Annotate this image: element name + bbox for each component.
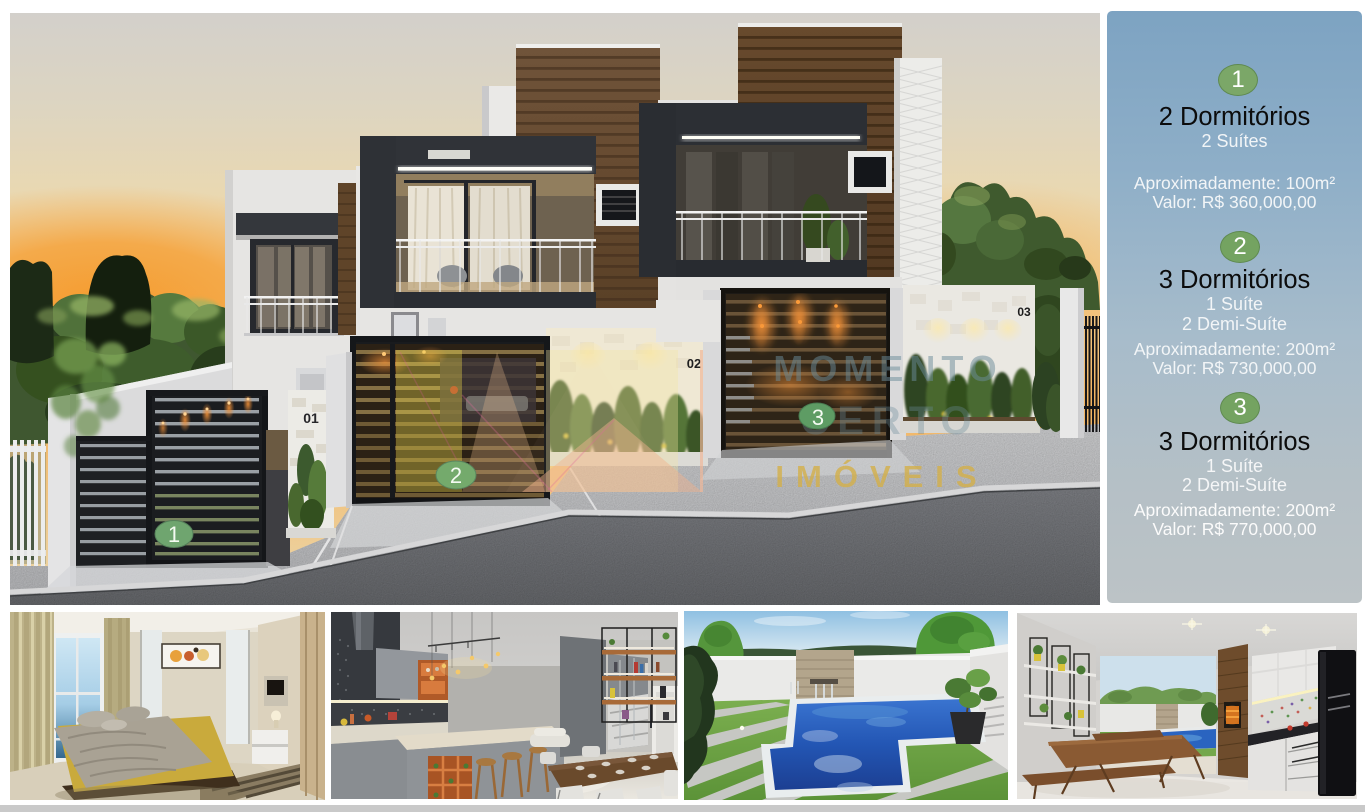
svg-text:1: 1	[168, 522, 180, 547]
svg-text:01: 01	[303, 410, 319, 426]
svg-text:IMÓVEIS: IMÓVEIS	[775, 458, 988, 494]
svg-text:02: 02	[687, 356, 701, 371]
svg-text:03: 03	[1017, 305, 1031, 319]
svg-text:MOMENTO: MOMENTO	[773, 348, 1002, 389]
svg-text:3: 3	[812, 405, 824, 430]
svg-text:2: 2	[450, 463, 462, 488]
